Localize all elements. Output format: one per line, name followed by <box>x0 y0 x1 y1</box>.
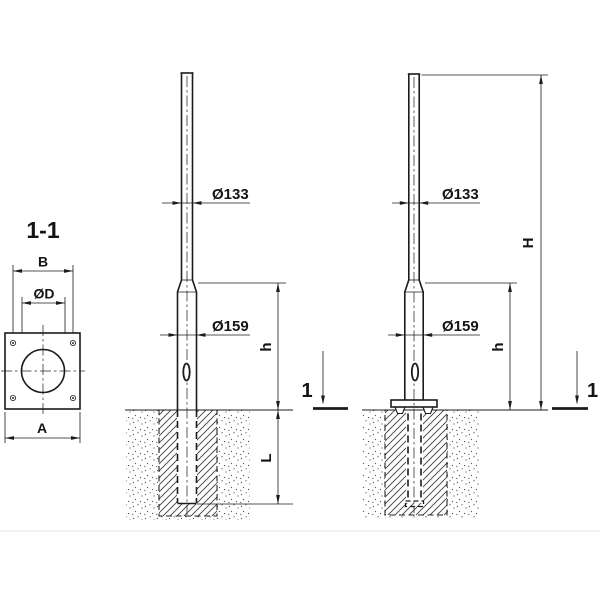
dim-label-B: B <box>38 254 48 270</box>
hand-hole <box>183 364 189 381</box>
anchor-clearance-mask <box>406 408 423 503</box>
dim-label-H: H <box>520 238 537 249</box>
dim-label-L: L <box>258 453 275 462</box>
dim-label-OD: ØD <box>34 286 55 302</box>
hand-hole <box>412 364 418 381</box>
dim-label-A: A <box>37 420 47 436</box>
dim-label-h: h <box>490 342 507 351</box>
cut-label-right: 1 <box>587 380 598 402</box>
drawing-canvas: 1-1 B ØD <box>0 0 600 600</box>
dim-label-h: h <box>258 342 275 351</box>
dim-label-d133: Ø133 <box>212 186 249 203</box>
pole-technical-drawing: 1-1 B ØD <box>0 0 600 600</box>
dim-label-d159: Ø159 <box>442 318 479 335</box>
dim-label-d133: Ø133 <box>442 186 479 203</box>
section-view-title: 1-1 <box>26 217 59 243</box>
dim-label-d159: Ø159 <box>212 318 249 335</box>
cut-label-left: 1 <box>301 380 312 402</box>
